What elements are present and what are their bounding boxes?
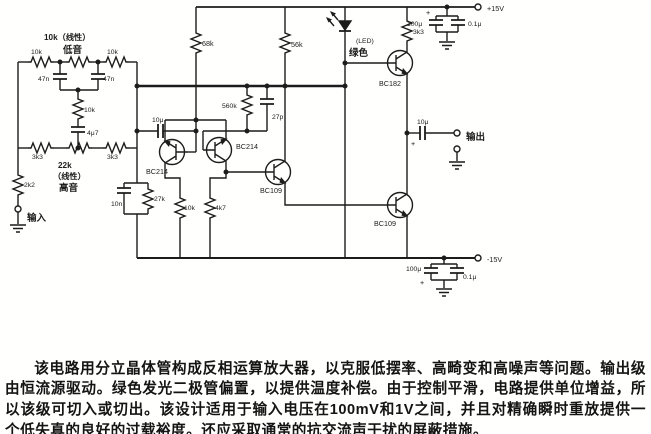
input-terminal: [15, 206, 21, 212]
c-bass-left-value: 47n: [38, 76, 50, 83]
c-top-polarity: +: [426, 8, 430, 17]
decouple-top-ground-icon: [439, 42, 455, 49]
decoupling-bottom: + 100μ 0.1μ: [406, 256, 476, 296]
r-feedback-value: 560k: [222, 103, 237, 110]
capacitor-feedback: [260, 99, 274, 104]
c-bot-polarity: +: [420, 278, 424, 287]
treble-pot-kind: （线性）: [53, 171, 86, 181]
resistor-bass-left: [28, 57, 54, 67]
c-wiper-value: 4μ7: [87, 130, 99, 137]
output-label: 输出: [466, 131, 485, 143]
treble-pot-value: 22k: [58, 161, 72, 170]
c-feedback-value: 27p: [272, 114, 284, 121]
resistor-load2: [205, 195, 215, 221]
capacitor-treble: [117, 188, 131, 193]
c-in-value: 10μ: [152, 117, 164, 124]
led-label: (LED): [356, 38, 374, 45]
resistor-feedback: [242, 92, 252, 118]
output-ground-icon: [449, 162, 465, 169]
output-terminal: [454, 130, 460, 136]
q2-designator: BC214: [236, 142, 258, 151]
c-bass-right-value: 47n: [103, 76, 115, 83]
output-section: 10μ + 输出: [407, 119, 485, 169]
tone-control-network: 10k（线性） 低音 10k 10k 47n 47n 10k 4μ7 3k3 3…: [18, 32, 166, 258]
capacitor-wiper: [71, 127, 85, 132]
positive-supply-terminal: [475, 4, 481, 10]
decoupling-top: + 100μ 0.1μ: [407, 5, 481, 49]
r-bass-left-value: 10k: [31, 49, 43, 56]
transistor-q4: [384, 47, 413, 79]
r-tail-value: 68k: [202, 39, 214, 48]
input-stage: 10μ 68k BC214 BC214 10k 4k7: [137, 7, 384, 258]
positive-rail: +15V: [196, 4, 504, 13]
bass-label: 低音: [62, 44, 83, 56]
q3-designator: BC109: [260, 186, 282, 195]
q4-designator: BC182: [379, 79, 401, 88]
resistor-treble-left: [28, 143, 54, 153]
r-cs-value: 3k3: [413, 29, 424, 36]
r-bass-right-value: 10k: [107, 49, 119, 56]
input-label: 输入: [27, 212, 47, 224]
circuit-description-paragraph: 该电路用分立晶体管构成反相运算放大器，以克服低摆率、高畸变和高噪声等问题。输出级…: [5, 359, 646, 434]
resistor-input: [13, 172, 23, 198]
input-ground-icon: [10, 225, 26, 232]
positive-supply-label: +15V: [487, 4, 504, 13]
treble-label: 高音: [59, 182, 79, 194]
resistor-tail: [191, 30, 201, 56]
resistor-treble-right: [103, 143, 129, 153]
c-treble-value: 10n: [111, 201, 123, 208]
resistor-treble-shunt: [143, 186, 153, 212]
r-input-value: 2k2: [24, 182, 35, 189]
led-green: [339, 21, 351, 30]
resistor-bass-right: [103, 57, 129, 67]
c-bot2-value: 0.1μ: [463, 274, 476, 281]
output-ground-terminal: [454, 146, 460, 152]
r-wiper-value: 10k: [84, 107, 96, 114]
negative-supply-label: -15V: [487, 255, 502, 264]
negative-supply-terminal: [475, 255, 481, 261]
led-color-label: 绿色: [349, 47, 369, 59]
c-out-polarity: +: [411, 139, 415, 148]
decouple-bottom-ground-icon: [436, 289, 452, 296]
c-top1-value: 100μ: [407, 21, 422, 28]
r-treble-right-value: 3k3: [107, 154, 118, 161]
resistor-load3: [280, 30, 290, 56]
r-load2-value: 4k7: [215, 205, 226, 212]
scanned-book-page: +15V -15V: [0, 0, 651, 434]
r-load1-value: 10k: [184, 205, 196, 212]
bass-pot-label: 10k（线性）: [44, 32, 90, 42]
capacitor-decouple-film-top: [451, 20, 465, 25]
q5-designator: BC109: [374, 219, 396, 228]
r-load3-value: 56k: [291, 40, 303, 49]
capacitor-decouple-electrolytic-bottom: [424, 268, 438, 273]
c-bot1-value: 100μ: [406, 266, 421, 273]
transistor-q1: [160, 136, 189, 168]
r-treble-left-value: 3k3: [32, 154, 43, 161]
c-out-value: 10μ: [417, 119, 429, 126]
capacitor-bass-left: [53, 74, 67, 79]
bass-pot-track: [66, 57, 92, 67]
feedback-bus: 560k 27p: [137, 84, 345, 133]
transistor-q3: [262, 156, 291, 188]
capacitor-decouple-film-bottom: [450, 268, 464, 273]
resistor-wiper: [73, 96, 83, 122]
transistor-q2: [203, 134, 232, 166]
capacitor-decouple-electrolytic-top: [429, 20, 443, 25]
capacitor-input-coupling: [158, 124, 163, 138]
negative-rail: -15V: [137, 255, 502, 264]
transistor-q5: [384, 189, 413, 221]
r-treble-shunt-value: 27k: [154, 196, 166, 203]
capacitor-output: [420, 126, 425, 140]
c-top2-value: 0.1μ: [468, 21, 481, 28]
circuit-schematic: +15V -15V: [0, 0, 651, 336]
